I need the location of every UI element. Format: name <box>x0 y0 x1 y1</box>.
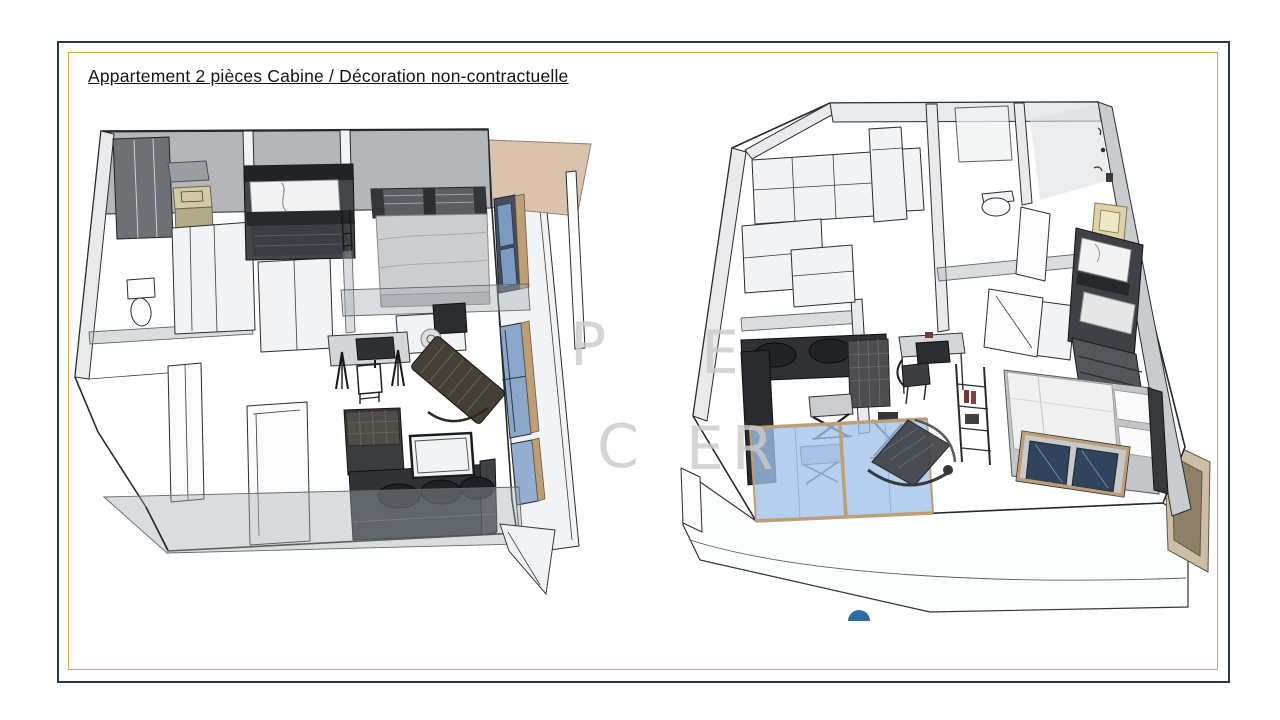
terrace-post-left <box>681 468 702 532</box>
bathroom-shelf <box>168 161 209 182</box>
entry-wardrobe <box>172 222 255 334</box>
door-leaf <box>1016 207 1050 281</box>
toilet-tank <box>127 278 155 299</box>
tv-bedroom <box>433 303 467 334</box>
bunk-bed <box>244 164 355 260</box>
floor-plan-left <box>75 129 591 594</box>
coffee-table <box>410 433 474 478</box>
open-door <box>500 524 555 594</box>
bedroom-window <box>494 194 529 293</box>
vanity-top <box>173 186 212 209</box>
floor-plan-page: Appartement 2 pièces Cabine / Décoration… <box>0 0 1280 720</box>
tall-wardrobe <box>168 363 204 502</box>
front-glass-wall <box>104 487 523 553</box>
blue-semicircle-mark <box>848 610 870 621</box>
floor-plan-right <box>681 102 1210 621</box>
door-leaf <box>984 289 1043 357</box>
balcony-post <box>566 171 585 349</box>
washbasin <box>982 198 1010 216</box>
shower <box>113 137 173 239</box>
floor-plans-drawing <box>0 0 1280 720</box>
